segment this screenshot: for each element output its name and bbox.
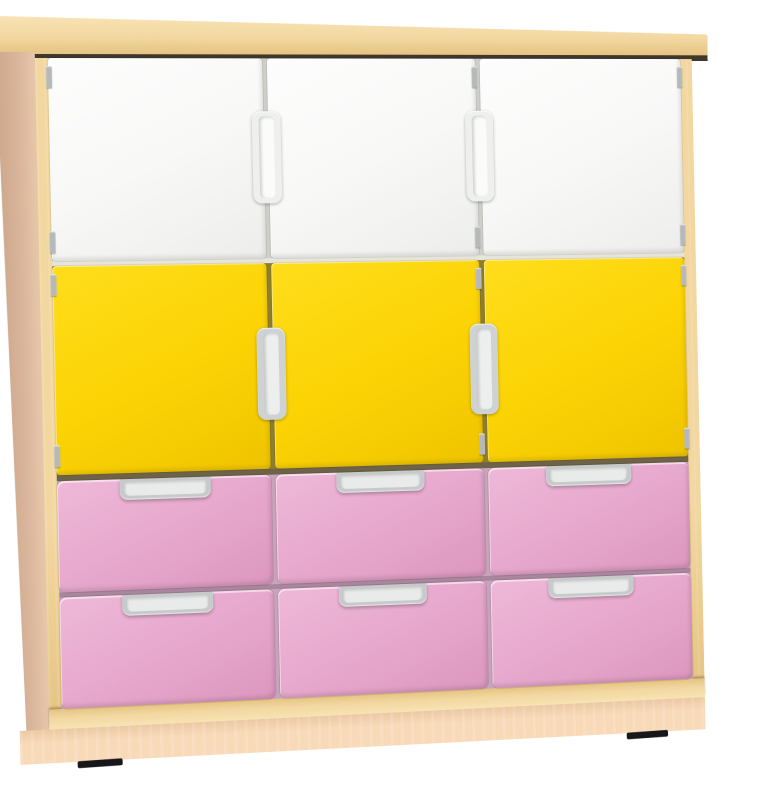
drawer-handle (339, 583, 427, 607)
hinge-icon (479, 433, 485, 454)
drawer-pink-upper-3 (488, 462, 691, 576)
storage-cabinet (0, 14, 722, 786)
drawer-handle (119, 477, 210, 501)
drawer-handle (546, 464, 632, 487)
hinge-icon (54, 445, 60, 467)
drawer-handle (336, 470, 424, 493)
drawer-pink-lower-1 (59, 589, 276, 709)
cabinet-front-rows (48, 58, 693, 709)
row-door-yellow (52, 257, 688, 475)
door-handle (252, 111, 283, 203)
door-handle-grip (476, 328, 492, 409)
drawer-handle (548, 575, 634, 598)
hinge-icon (49, 231, 55, 253)
cabinet-foot-right (627, 730, 669, 740)
drawer-pink-upper-1 (57, 475, 274, 593)
drawer-handle (122, 592, 213, 616)
door-yellow-3 (483, 257, 688, 462)
door-white-3 (479, 59, 684, 256)
drawer-pink-lower-2 (278, 581, 487, 699)
cabinet-scene (0, 14, 722, 786)
door-white-1 (48, 58, 267, 261)
drawer-handle-grip (341, 472, 420, 489)
drawer-handle-grip (551, 466, 627, 483)
door-handle-grip (471, 116, 487, 197)
drawer-handle-grip (343, 585, 422, 603)
hinge-icon (677, 67, 683, 88)
door-handle (469, 323, 499, 414)
door-yellow-2 (271, 260, 483, 469)
hinge-icon (474, 226, 480, 247)
door-handle (257, 327, 288, 420)
door-handle-grip (263, 332, 280, 415)
hinge-icon (50, 274, 56, 296)
hinge-icon (46, 66, 52, 88)
hinge-icon (680, 224, 686, 245)
cabinet-frame (35, 58, 705, 730)
drawer-handle-grip (553, 577, 629, 594)
row-door-white (48, 58, 684, 261)
product-photo (0, 0, 757, 800)
hinge-icon (475, 268, 481, 289)
door-handle (465, 111, 495, 202)
hinge-icon (681, 265, 687, 286)
drawer-pink-upper-2 (276, 468, 486, 584)
drawer-handle-grip (124, 479, 206, 496)
hinge-icon (471, 66, 477, 87)
door-yellow-1 (52, 263, 271, 475)
hinge-icon (684, 428, 690, 449)
drawer-handle-grip (127, 594, 209, 612)
drawer-pink-lower-3 (490, 573, 693, 689)
door-handle-grip (259, 116, 276, 198)
cabinet-top-board (0, 16, 708, 55)
door-white-2 (267, 58, 479, 258)
